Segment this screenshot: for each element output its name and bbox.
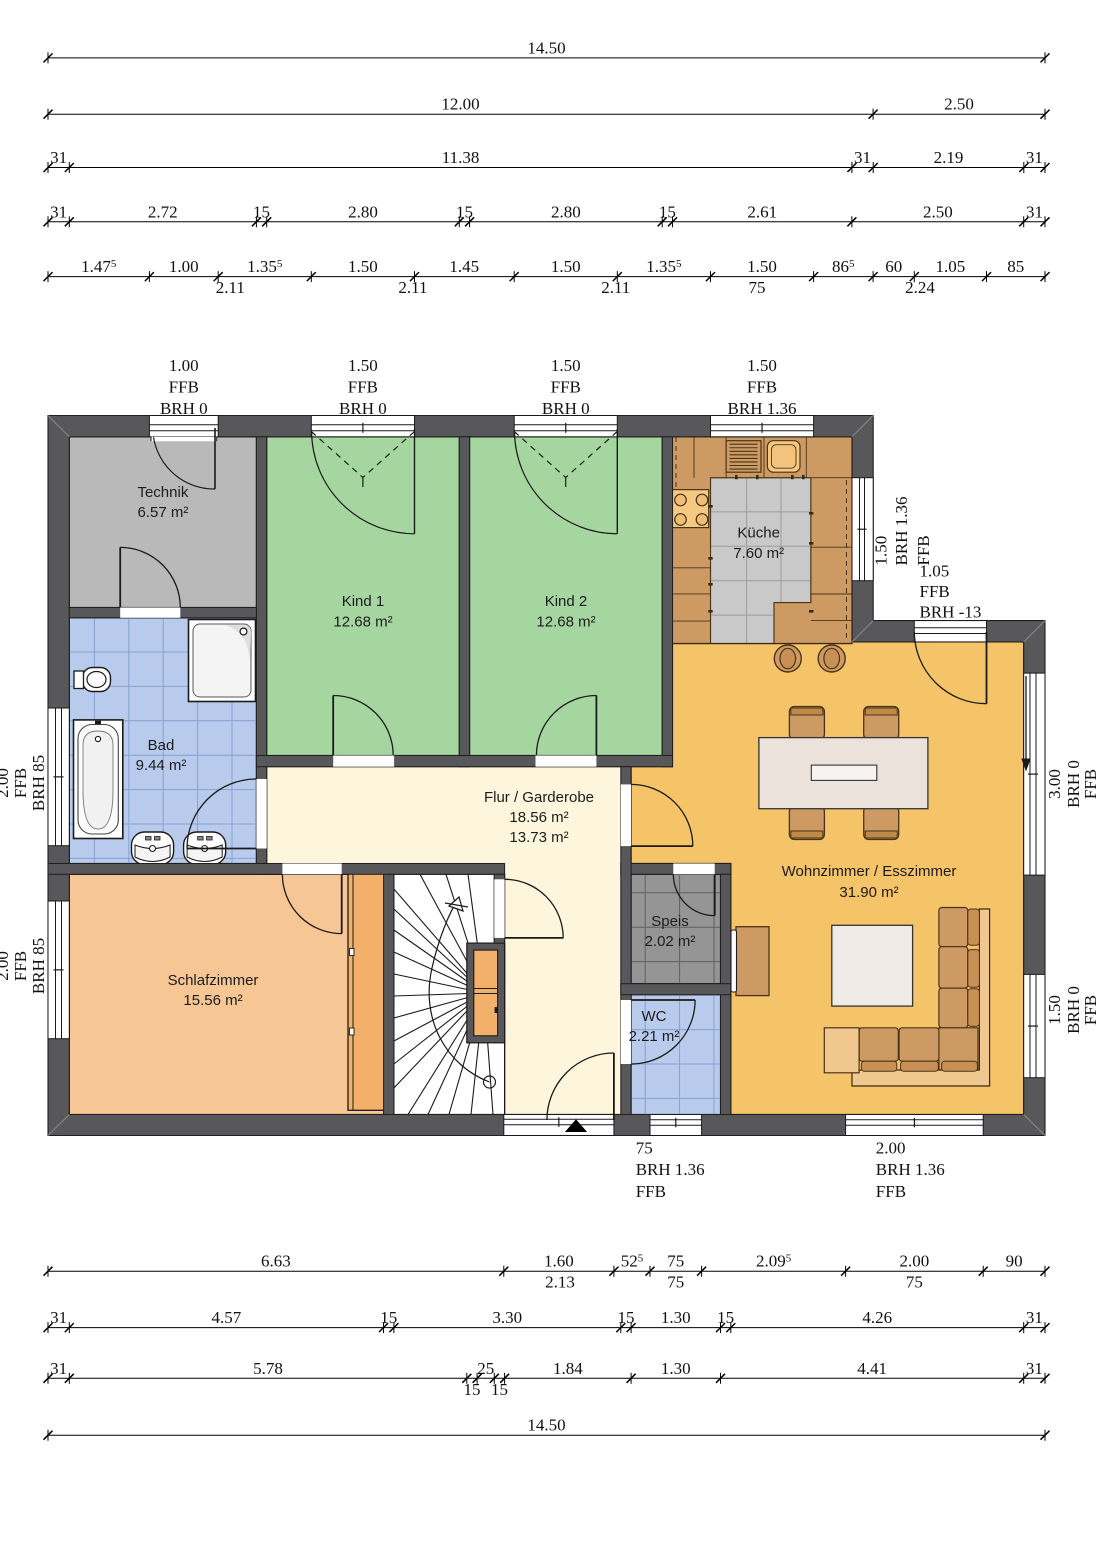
svg-text:BRH 1.36: BRH 1.36 (876, 1160, 945, 1179)
svg-text:4.57: 4.57 (212, 1308, 242, 1327)
svg-text:2.61: 2.61 (747, 202, 777, 221)
svg-text:FFB: FFB (1081, 769, 1100, 799)
svg-text:15: 15 (618, 1308, 635, 1327)
svg-text:FFB: FFB (11, 768, 30, 798)
svg-text:FFB: FFB (1081, 995, 1100, 1025)
svg-text:Bad: Bad (148, 737, 175, 754)
svg-text:14.50: 14.50 (527, 38, 565, 57)
svg-text:1.50: 1.50 (348, 257, 378, 276)
svg-text:Schlafzimmer: Schlafzimmer (168, 972, 259, 989)
svg-text:90: 90 (1006, 1252, 1023, 1271)
svg-text:2.50: 2.50 (923, 202, 953, 221)
svg-text:FFB: FFB (11, 951, 30, 981)
svg-text:BRH 0: BRH 0 (542, 399, 590, 418)
svg-text:2.50: 2.50 (944, 95, 974, 114)
svg-text:15: 15 (659, 202, 676, 221)
svg-text:1.00: 1.00 (169, 356, 199, 375)
svg-text:75: 75 (667, 1252, 684, 1271)
svg-text:1.50: 1.50 (747, 257, 777, 276)
svg-text:2.21 m²: 2.21 m² (629, 1028, 680, 1045)
svg-text:15: 15 (253, 202, 270, 221)
svg-text:FFB: FFB (747, 378, 777, 397)
svg-text:2.19: 2.19 (934, 148, 964, 167)
svg-text:4.41: 4.41 (857, 1359, 887, 1378)
svg-text:1.50: 1.50 (551, 356, 581, 375)
svg-text:Kind 2: Kind 2 (545, 593, 588, 610)
svg-text:BRH 85: BRH 85 (29, 938, 48, 994)
svg-text:FFB: FFB (169, 378, 199, 397)
svg-text:31: 31 (50, 148, 67, 167)
svg-text:6.57 m²: 6.57 m² (137, 504, 188, 521)
svg-text:25: 25 (477, 1359, 494, 1378)
svg-text:2.11: 2.11 (601, 278, 630, 297)
svg-text:13.73 m²: 13.73 m² (509, 829, 568, 846)
svg-text:9.44 m²: 9.44 m² (136, 757, 187, 774)
svg-text:1.50: 1.50 (1045, 995, 1064, 1025)
svg-text:FFB: FFB (551, 378, 581, 397)
svg-text:2.00: 2.00 (900, 1252, 930, 1271)
svg-text:2.11: 2.11 (398, 278, 427, 297)
svg-text:1.45: 1.45 (449, 257, 479, 276)
svg-text:1.30: 1.30 (661, 1359, 691, 1378)
svg-text:15: 15 (491, 1380, 508, 1399)
svg-text:31: 31 (854, 148, 871, 167)
svg-text:2.80: 2.80 (348, 202, 378, 221)
svg-text:31: 31 (1026, 148, 1043, 167)
svg-text:Küche: Küche (737, 524, 780, 541)
svg-text:2.00: 2.00 (876, 1138, 906, 1157)
svg-text:1.60: 1.60 (544, 1252, 574, 1271)
svg-text:2.11: 2.11 (216, 278, 245, 297)
svg-text:2.02 m²: 2.02 m² (645, 933, 696, 950)
svg-text:18.56 m²: 18.56 m² (509, 809, 568, 826)
svg-text:BRH -13: BRH -13 (920, 603, 982, 622)
svg-text:15: 15 (464, 1380, 481, 1399)
svg-text:Flur / Garderobe: Flur / Garderobe (484, 789, 594, 806)
svg-text:1.50: 1.50 (348, 356, 378, 375)
svg-text:BRH 1.36: BRH 1.36 (636, 1160, 705, 1179)
svg-text:1.05: 1.05 (920, 561, 950, 580)
svg-text:15: 15 (717, 1308, 734, 1327)
svg-text:FFB: FFB (348, 378, 378, 397)
svg-text:2.80: 2.80 (551, 202, 581, 221)
svg-text:FFB: FFB (636, 1182, 666, 1201)
svg-text:2.24: 2.24 (905, 278, 935, 297)
svg-text:Wohnzimmer / Esszimmer: Wohnzimmer / Esszimmer (782, 863, 957, 880)
svg-text:BRH 1.36: BRH 1.36 (728, 399, 797, 418)
svg-text:3.30: 3.30 (492, 1308, 522, 1327)
svg-text:5.78: 5.78 (253, 1359, 283, 1378)
svg-text:2.72: 2.72 (148, 202, 178, 221)
svg-text:31: 31 (1026, 202, 1043, 221)
svg-text:15.56 m²: 15.56 m² (183, 992, 242, 1009)
svg-text:15: 15 (456, 202, 473, 221)
svg-text:15: 15 (380, 1308, 397, 1327)
svg-text:BRH 85: BRH 85 (29, 755, 48, 811)
svg-text:31: 31 (50, 1359, 67, 1378)
svg-text:31: 31 (1026, 1359, 1043, 1378)
svg-text:75: 75 (906, 1273, 923, 1292)
svg-text:1.84: 1.84 (553, 1359, 583, 1378)
svg-text:FFB: FFB (920, 582, 950, 601)
svg-text:75: 75 (636, 1138, 653, 1157)
svg-text:1.50: 1.50 (872, 536, 891, 566)
svg-text:Technik: Technik (137, 484, 188, 501)
svg-text:BRH 1.36: BRH 1.36 (892, 497, 911, 566)
svg-text:85: 85 (1007, 257, 1024, 276)
svg-text:Speis: Speis (651, 913, 689, 930)
svg-text:1.30: 1.30 (661, 1308, 691, 1327)
svg-text:1.05: 1.05 (936, 257, 966, 276)
svg-text:2.13: 2.13 (545, 1273, 575, 1292)
svg-text:1.00: 1.00 (169, 257, 199, 276)
svg-text:12.00: 12.00 (441, 95, 479, 114)
svg-text:31: 31 (50, 202, 67, 221)
svg-text:7.60 m²: 7.60 m² (733, 545, 784, 562)
svg-text:4.26: 4.26 (862, 1308, 892, 1327)
svg-text:31: 31 (1026, 1308, 1043, 1327)
svg-text:75: 75 (749, 278, 766, 297)
svg-text:3.00: 3.00 (1045, 769, 1064, 799)
svg-text:14.50: 14.50 (527, 1416, 565, 1435)
svg-text:12.68 m²: 12.68 m² (333, 614, 392, 631)
svg-text:BRH 0: BRH 0 (160, 399, 208, 418)
svg-text:Kind 1: Kind 1 (342, 593, 385, 610)
svg-text:12.68 m²: 12.68 m² (536, 614, 595, 631)
svg-text:BRH 0: BRH 0 (339, 399, 387, 418)
svg-text:75: 75 (667, 1273, 684, 1292)
svg-text:6.63: 6.63 (261, 1252, 291, 1271)
svg-text:31.90 m²: 31.90 m² (839, 884, 898, 901)
svg-text:WC: WC (642, 1008, 667, 1025)
svg-text:60: 60 (885, 257, 902, 276)
svg-text:1.50: 1.50 (747, 356, 777, 375)
svg-text:11.38: 11.38 (442, 148, 480, 167)
svg-text:FFB: FFB (876, 1182, 906, 1201)
svg-text:1.50: 1.50 (551, 257, 581, 276)
svg-text:31: 31 (50, 1308, 67, 1327)
